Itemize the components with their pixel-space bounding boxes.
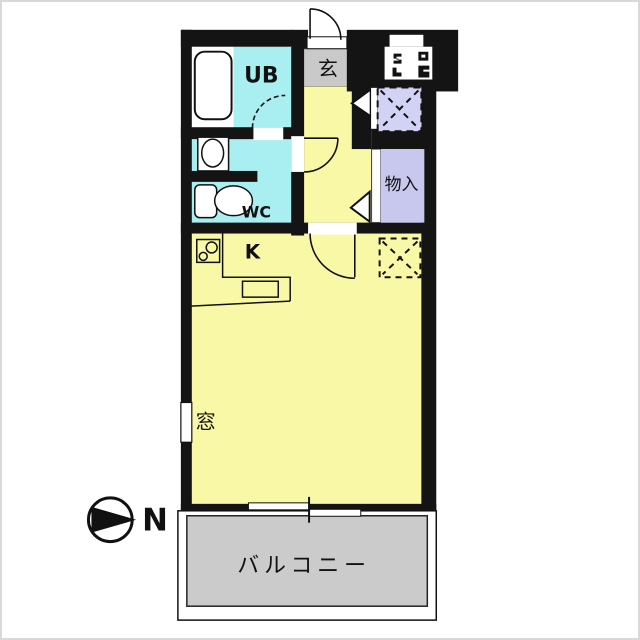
floorplan-canvas: バルコニー <box>0 0 640 640</box>
room-kitchen-living <box>191 234 423 504</box>
pipespace-door <box>371 87 378 129</box>
ub-door-opening <box>253 127 283 140</box>
window-label: 窓 <box>196 410 216 433</box>
meter-box-window <box>390 35 424 47</box>
floorplan-drawing: バルコニー <box>2 2 638 638</box>
hallway-upper <box>303 86 352 149</box>
wall-wc-kitchen <box>181 223 424 234</box>
storage-label: 物入 <box>385 174 419 194</box>
window-opening <box>181 402 192 442</box>
entrance-door-icon <box>310 9 341 40</box>
wall-left <box>181 30 192 516</box>
wc-door-opening <box>291 136 304 172</box>
wall-entrance-left <box>292 30 308 49</box>
wc-label: WC <box>242 203 271 222</box>
balcony-label: バルコニー <box>237 553 371 578</box>
storage-area: 物入 <box>371 87 425 222</box>
unit-bath-label: UB <box>244 63 278 88</box>
bathtub-icon <box>195 52 232 120</box>
compass-north-icon: N <box>88 498 167 542</box>
north-label: N <box>142 503 168 539</box>
entrance-label: 玄 <box>318 58 338 81</box>
pipe-space-dashed-x-box <box>378 87 422 131</box>
washbasin-icon <box>198 137 229 171</box>
wall-wc-partition <box>191 171 258 182</box>
storage-door <box>372 149 381 223</box>
balcony: バルコニー <box>178 511 436 620</box>
kitchen-door-opening <box>308 223 357 235</box>
wall-top-left <box>181 30 293 47</box>
kitchen-label: K <box>245 240 261 263</box>
